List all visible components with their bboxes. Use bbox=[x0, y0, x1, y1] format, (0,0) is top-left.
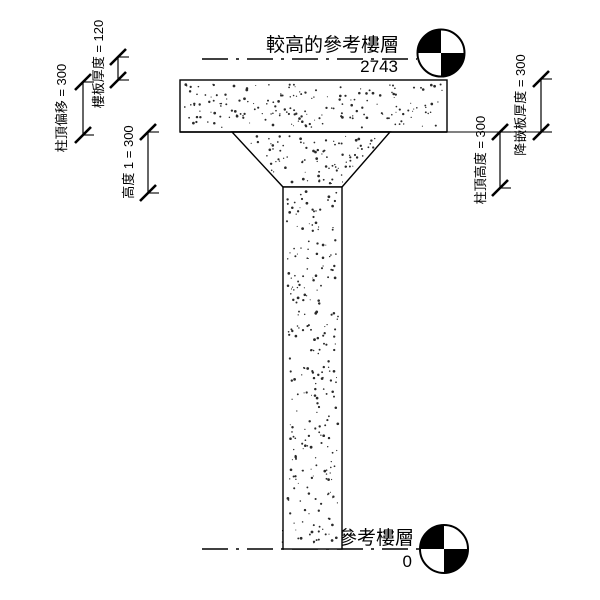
dim-label-column-top-offset: 柱頂偏移 = 300 bbox=[54, 64, 69, 153]
dim-height-1 bbox=[140, 124, 159, 201]
upper-level-label: 較高的參考樓層 bbox=[266, 34, 399, 56]
dim-floor-thickness bbox=[110, 49, 129, 88]
dim-label-floor-thickness: 樓板厚度 = 120 bbox=[91, 20, 106, 109]
lower-level-elevation: 0 bbox=[403, 552, 412, 571]
lower-level-marker-icon bbox=[420, 525, 468, 573]
dim-column-top-height bbox=[492, 124, 511, 196]
upper-level-marker-icon bbox=[418, 30, 465, 77]
dim-label-height-1: 高度 1 = 300 bbox=[121, 125, 136, 198]
column-shaft bbox=[283, 187, 342, 549]
column-capital bbox=[232, 132, 390, 187]
column-section-diagram: 較高的參考樓層 2743 較低的參考樓層 0 柱頂偏移 = 300 樓板厚度 =… bbox=[0, 0, 600, 600]
diagram-canvas: 較高的參考樓層 2743 較低的參考樓層 0 柱頂偏移 = 300 樓板厚度 =… bbox=[0, 0, 600, 600]
dim-label-column-top-height: 柱頂高度 = 300 bbox=[473, 116, 488, 205]
drop-panel-slab bbox=[180, 80, 447, 132]
dim-label-drop-panel-thickness: 降嵌板厚度 = 300 bbox=[513, 54, 528, 156]
upper-level-elevation: 2743 bbox=[360, 57, 398, 76]
dim-drop-panel-thickness bbox=[533, 71, 552, 140]
